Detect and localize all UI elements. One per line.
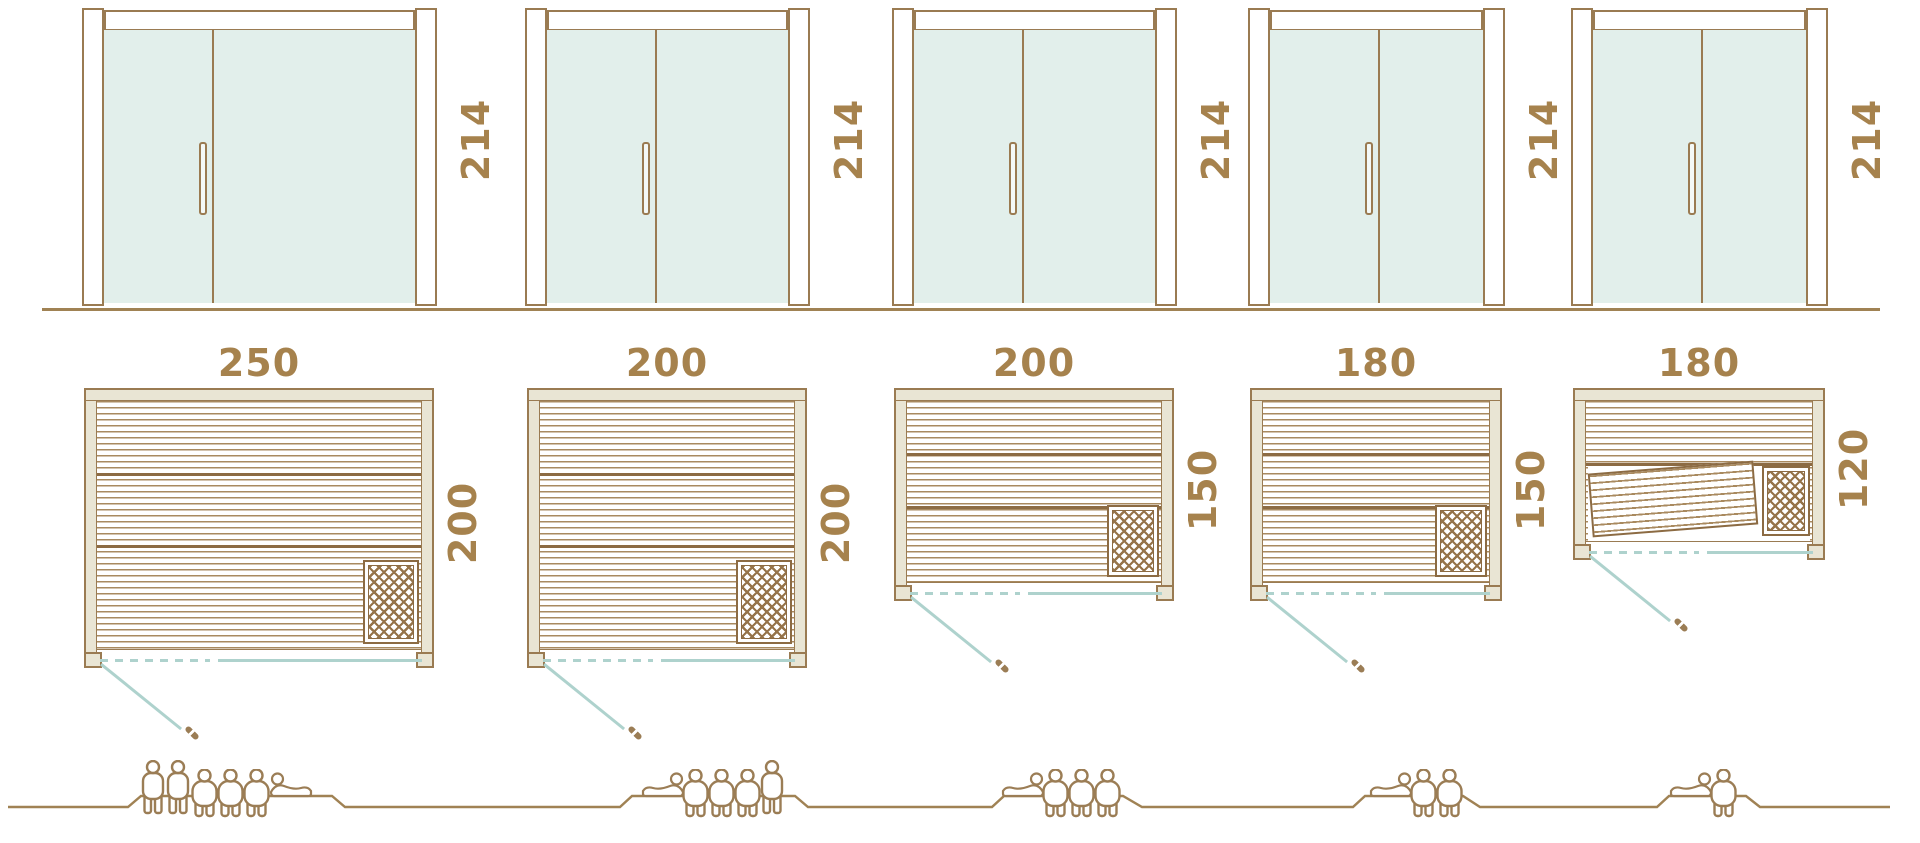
door-glass-pane-left: [1270, 30, 1380, 303]
door-glass-pane-right: [657, 30, 788, 303]
door-opening-dashed-line: [1266, 592, 1376, 595]
floor-line: [1531, 308, 1880, 311]
person-seated-glyph: [1041, 769, 1070, 819]
door-glass-pane-right: [1380, 30, 1483, 303]
door-lintel: [1593, 10, 1806, 31]
door-glass-pane-right: [1024, 30, 1155, 303]
door-lintel: [104, 10, 415, 31]
door-glass: [547, 30, 788, 303]
floor-plan: [1573, 388, 1825, 550]
floor-line: [42, 308, 489, 311]
person-reclining-glyph: [640, 772, 686, 798]
door-swing-handle-icon: [1673, 617, 1689, 633]
bench-edge-line: [540, 545, 794, 548]
door-elevation: [525, 8, 810, 308]
door-opening-dashed-line: [910, 592, 1020, 595]
person-standing-glyph: [759, 760, 785, 816]
door-elevation: [892, 8, 1177, 308]
person-seated-icon: [1093, 769, 1122, 819]
person-seated-glyph: [1067, 769, 1096, 819]
door-swing-handle-icon: [627, 725, 643, 741]
person-seated-icon: [1409, 769, 1438, 819]
door-handle-icon: [1009, 142, 1017, 215]
open-door-swing-line: [543, 663, 625, 730]
person-standing-glyph: [165, 760, 191, 816]
plan-width-dimension: 200: [527, 344, 807, 382]
floor-plan: [84, 388, 434, 658]
plan-width-dimension: 180: [1573, 344, 1825, 382]
open-door-swing-line: [100, 663, 182, 730]
person-reclining-glyph: [1668, 772, 1714, 798]
person-reclining-glyph: [1368, 772, 1414, 798]
door-height-dimension: 214: [1817, 109, 1917, 171]
door-glass-pane-left: [914, 30, 1024, 303]
person-seated-icon: [707, 769, 736, 819]
person-seated-icon: [242, 769, 271, 819]
door-frame-post-left: [82, 8, 104, 306]
person-reclining-glyph: [1000, 772, 1046, 798]
plan-depth-dimension: 200: [413, 498, 513, 548]
person-seated-icon: [190, 769, 219, 819]
heater-grill-pattern: [1112, 510, 1154, 572]
bench-edge-line: [1263, 453, 1489, 456]
person-seated-glyph: [681, 769, 710, 819]
bench-edge-line: [97, 545, 421, 548]
person-reclining-icon: [1368, 772, 1414, 798]
person-reclining-icon: [268, 772, 314, 798]
floor-plan: [1250, 388, 1502, 591]
open-door-swing-line: [1266, 596, 1348, 663]
door-glass-pane-left: [547, 30, 657, 303]
person-seated-glyph: [707, 769, 736, 819]
plan-width-dimension: 180: [1250, 344, 1502, 382]
person-seated-icon: [681, 769, 710, 819]
door-glass-pane-left: [1593, 30, 1703, 303]
door-frame-post-left: [525, 8, 547, 306]
bench-edge-line: [97, 473, 421, 476]
floor-plan: [527, 388, 807, 658]
heater-icon: [1107, 505, 1159, 577]
tilted-bench: [1588, 460, 1759, 537]
door-handle-icon: [642, 142, 650, 215]
open-door-swing-line: [1589, 555, 1671, 622]
door-lintel: [1270, 10, 1483, 31]
heater-icon: [1762, 466, 1810, 536]
heater-icon: [1435, 505, 1487, 577]
heater-grill-pattern: [1767, 471, 1805, 531]
person-seated-icon: [1435, 769, 1464, 819]
person-seated-glyph: [216, 769, 245, 819]
door-glass-pane-right: [1703, 30, 1806, 303]
person-standing-icon: [140, 760, 166, 816]
person-reclining-icon: [1000, 772, 1046, 798]
person-seated-glyph: [1409, 769, 1438, 819]
door-elevation: [1571, 8, 1828, 308]
plan-interior: [906, 400, 1162, 583]
door-opening-dashed-line: [1589, 551, 1699, 554]
plan-depth-dimension: 120: [1804, 444, 1904, 494]
plan-interior: [96, 400, 422, 650]
person-reclining-icon: [1668, 772, 1714, 798]
door-lintel: [914, 10, 1155, 31]
door-swing-handle-icon: [184, 725, 200, 741]
door-height-dimension: 214: [799, 109, 899, 171]
floor-plan: [894, 388, 1174, 591]
door-lintel: [547, 10, 788, 31]
door-swing-handle-icon: [1350, 658, 1366, 674]
door-frame-post-left: [1571, 8, 1593, 306]
plan-interior: [539, 400, 795, 650]
person-seated-icon: [1041, 769, 1070, 819]
person-standing-icon: [165, 760, 191, 816]
person-seated-icon: [733, 769, 762, 819]
plan-width-dimension: 200: [894, 344, 1174, 382]
door-glass-pane-right: [214, 30, 415, 303]
door-glass: [1593, 30, 1806, 303]
door-handle-icon: [199, 142, 207, 215]
door-opening-dashed-line: [543, 659, 653, 662]
plan-width-dimension: 250: [84, 344, 434, 382]
door-glass: [914, 30, 1155, 303]
heater-grill-pattern: [1440, 510, 1482, 572]
floor-line: [485, 308, 862, 311]
door-elevation: [82, 8, 437, 308]
door-elevation: [1248, 8, 1505, 308]
bench-edge-line: [540, 473, 794, 476]
plan-depth-dimension: 150: [1481, 465, 1581, 515]
heater-grill-pattern: [368, 565, 414, 639]
person-standing-glyph: [140, 760, 166, 816]
person-seated-glyph: [1709, 769, 1738, 819]
heater-icon: [736, 560, 792, 644]
person-seated-icon: [1067, 769, 1096, 819]
door-handle-icon: [1365, 142, 1373, 215]
door-glass-pane-left: [104, 30, 214, 303]
door-swing-handle-icon: [994, 658, 1010, 674]
floor-line: [852, 308, 1229, 311]
person-seated-icon: [1709, 769, 1738, 819]
door-height-dimension: 214: [426, 109, 526, 171]
person-seated-glyph: [1435, 769, 1464, 819]
door-glass: [104, 30, 415, 303]
glass-front-line: [218, 659, 422, 662]
person-seated-glyph: [242, 769, 271, 819]
plan-interior: [1585, 400, 1813, 542]
door-frame-post-left: [1248, 8, 1270, 306]
bench-edge-line: [907, 453, 1161, 456]
heater-icon: [363, 560, 419, 644]
door-frame-post-left: [892, 8, 914, 306]
open-door-swing-line: [910, 596, 992, 663]
glass-front-line: [1707, 551, 1813, 554]
person-reclining-icon: [640, 772, 686, 798]
glass-front-line: [661, 659, 795, 662]
plan-depth-dimension: 150: [1153, 465, 1253, 515]
glass-front-line: [1384, 592, 1490, 595]
door-glass: [1270, 30, 1483, 303]
person-seated-glyph: [1093, 769, 1122, 819]
floor-line: [1208, 308, 1557, 311]
door-handle-icon: [1688, 142, 1696, 215]
person-seated-icon: [216, 769, 245, 819]
person-standing-icon: [759, 760, 785, 816]
plan-interior: [1262, 400, 1490, 583]
person-seated-glyph: [733, 769, 762, 819]
glass-front-line: [1028, 592, 1162, 595]
door-opening-dashed-line: [100, 659, 210, 662]
person-reclining-glyph: [268, 772, 314, 798]
heater-grill-pattern: [741, 565, 787, 639]
sauna-size-diagram: 2142502002142002002142001502141801502141…: [0, 0, 1920, 843]
person-seated-glyph: [190, 769, 219, 819]
plan-depth-dimension: 200: [786, 498, 886, 548]
